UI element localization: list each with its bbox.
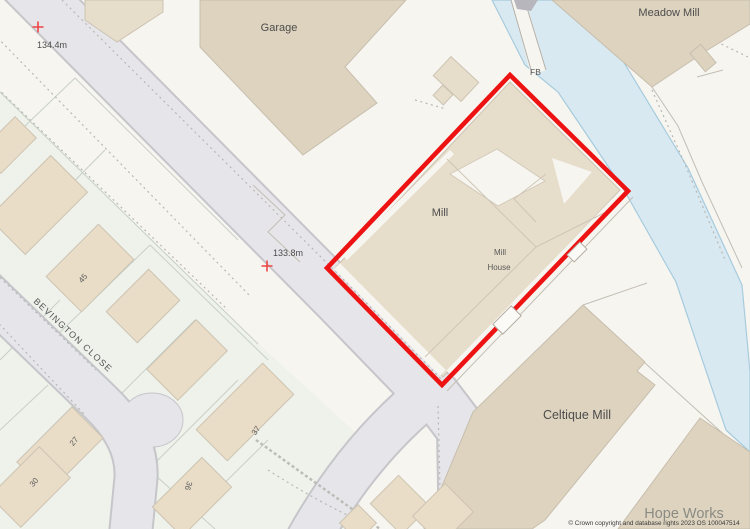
footbridge-label: FB: [530, 67, 541, 77]
garage-building: [200, 0, 406, 155]
mill-house-label-line1: Mill: [494, 248, 506, 257]
map-viewport[interactable]: Garage Meadow Mill FB Mill Mill House Ce…: [0, 0, 750, 529]
parcel-line: [583, 283, 647, 305]
spot-height-label: 133.8m: [273, 248, 303, 258]
spot-height-label: 134.4m: [37, 40, 67, 50]
os-map-canvas[interactable]: Garage Meadow Mill FB Mill Mill House Ce…: [0, 0, 750, 529]
garage-label: Garage: [261, 22, 298, 34]
celtique-mill-label: Celtique Mill: [543, 408, 611, 422]
copyright-attribution: © Crown copyright and database rights 20…: [568, 519, 740, 527]
turning-head-fill: [123, 395, 181, 445]
mill-label: Mill: [432, 207, 449, 219]
meadow-mill-label: Meadow Mill: [638, 7, 699, 19]
wall-line: [697, 70, 723, 77]
mill-house-label-line2: House: [487, 263, 511, 272]
